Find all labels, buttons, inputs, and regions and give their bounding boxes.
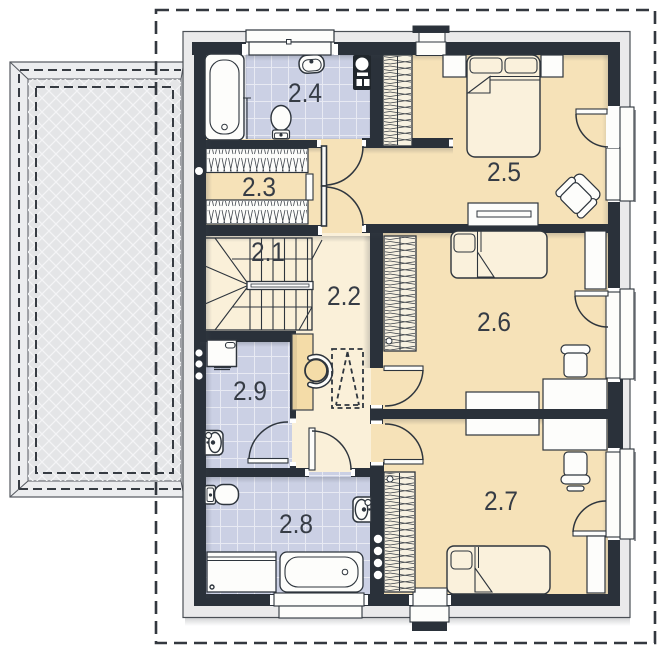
svg-text:2.2: 2.2	[327, 281, 361, 311]
svg-text:2.5: 2.5	[487, 157, 521, 187]
svg-text:2.9: 2.9	[233, 376, 267, 406]
svg-text:2.8: 2.8	[279, 509, 313, 539]
svg-text:2.1: 2.1	[251, 237, 285, 267]
svg-text:2.6: 2.6	[477, 307, 511, 337]
svg-text:2.7: 2.7	[484, 486, 518, 516]
svg-text:2.4: 2.4	[288, 78, 322, 108]
svg-text:2.3: 2.3	[242, 172, 276, 202]
